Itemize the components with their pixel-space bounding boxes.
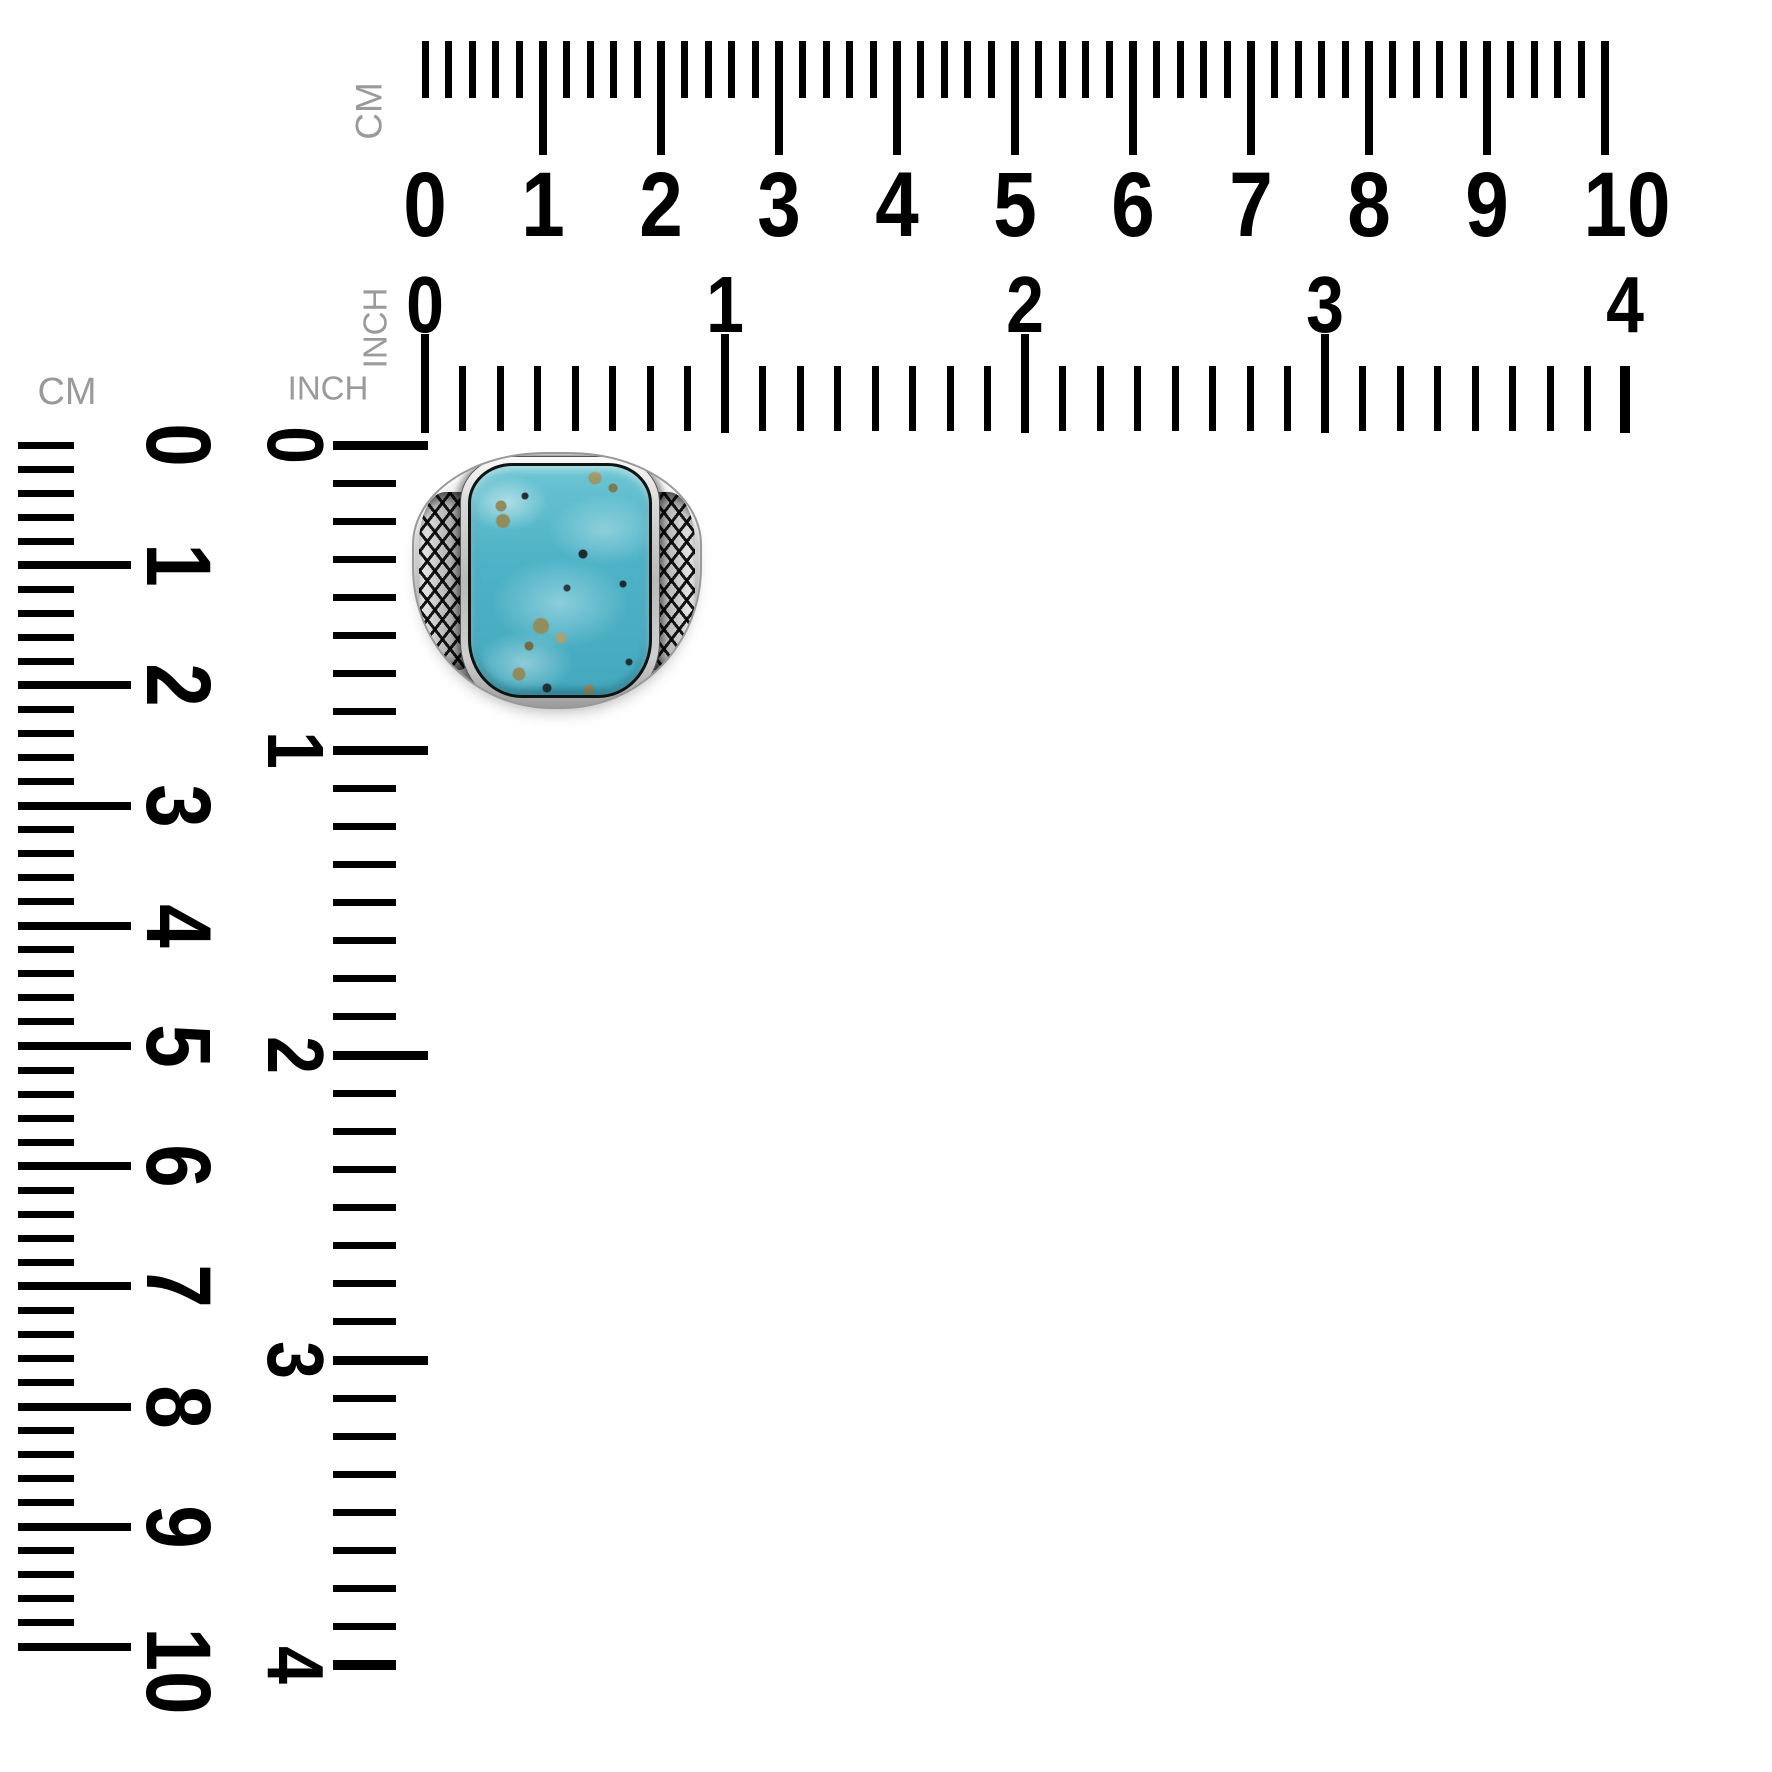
top-cm-ruler-number: 5 (993, 159, 1036, 251)
left-inch-ruler-number: 4 (255, 1646, 335, 1684)
top-cm-ruler-tick (1082, 41, 1089, 98)
left-cm-ruler-number: 0 (132, 423, 224, 466)
top-cm-ruler-tick (728, 41, 735, 98)
top-inch-ruler-number: 3 (1306, 265, 1344, 345)
top-cm-ruler-tick (941, 41, 948, 98)
top-cm-ruler-tick (469, 41, 476, 98)
top-inch-ruler-tick (1620, 366, 1630, 433)
left-cm-ruler-tick (18, 1162, 131, 1170)
left-cm-ruler-tick (18, 1187, 74, 1194)
top-cm-ruler-tick (422, 41, 429, 98)
top-inch-ruler-tick (1134, 366, 1141, 431)
top-cm-ruler-tick (1578, 41, 1585, 98)
top-cm-ruler-number: 7 (1229, 159, 1272, 251)
top-inch-ruler-tick (459, 366, 466, 431)
top-cm-ruler-tick (917, 41, 924, 98)
top-inch-ruler-tick (497, 366, 504, 431)
top-cm-ruler-tick (1011, 41, 1019, 155)
top-cm-ruler-tick (823, 41, 830, 98)
left-inch-ruler-tick (333, 785, 396, 792)
top-inch-ruler-tick (1547, 366, 1554, 431)
top-inch-ruler-tick (872, 366, 879, 431)
top-inch-ruler-tick (647, 366, 654, 431)
top-cm-ruler-number: 6 (1111, 159, 1154, 251)
top-inch-unit-label: INCH (359, 288, 392, 369)
top-inch-ruler-tick (1097, 366, 1104, 431)
top-inch-ruler-tick (759, 366, 766, 431)
top-cm-ruler-tick (1177, 41, 1184, 98)
top-cm-ruler-tick (1295, 41, 1302, 98)
left-cm-ruler-tick (18, 1355, 74, 1362)
top-cm-ruler-tick (799, 41, 806, 98)
top-inch-ruler-tick (534, 366, 541, 431)
top-cm-ruler-tick (1318, 41, 1325, 98)
left-cm-ruler-tick (18, 1547, 74, 1554)
top-inch-ruler-tick (1172, 366, 1179, 431)
top-cm-ruler-tick (705, 41, 712, 98)
left-cm-ruler-tick (18, 1235, 74, 1242)
top-cm-ruler-number: 9 (1465, 159, 1508, 251)
left-cm-ruler-tick (18, 681, 131, 689)
top-cm-ruler-tick (1365, 41, 1373, 155)
top-inch-ruler-tick (1509, 366, 1516, 431)
top-cm-ruler-tick (492, 41, 499, 98)
left-cm-ruler-number: 5 (132, 1024, 224, 1067)
left-cm-ruler-tick (18, 1523, 131, 1531)
top-cm-ruler-tick (1413, 41, 1420, 98)
left-cm-ruler-number: 7 (132, 1265, 224, 1308)
left-cm-ruler-tick (18, 1259, 74, 1266)
left-cm-ruler-tick (18, 586, 74, 593)
left-cm-ruler-tick (18, 706, 74, 713)
left-inch-ruler-tick (333, 1356, 428, 1365)
left-inch-unit-label: INCH (288, 372, 369, 405)
ring-silver-band (412, 452, 702, 709)
ring-left-shoulder-crosshatch-texture (419, 492, 466, 670)
top-inch-ruler-tick (572, 366, 579, 431)
left-inch-ruler-tick (333, 975, 396, 982)
left-cm-ruler-tick (18, 561, 131, 569)
top-inch-ruler-tick (1434, 366, 1441, 431)
top-cm-ruler-tick (1200, 41, 1207, 98)
left-inch-ruler-tick (333, 670, 396, 677)
left-cm-ruler-tick (18, 730, 74, 737)
left-cm-ruler-tick (18, 1451, 74, 1458)
top-cm-ruler-tick (539, 41, 547, 155)
top-cm-ruler-tick (775, 41, 783, 155)
top-cm-ruler-tick (1106, 41, 1113, 98)
left-cm-ruler-tick (18, 1643, 131, 1651)
left-inch-ruler-tick (333, 861, 396, 868)
top-cm-ruler-tick (610, 41, 617, 98)
left-cm-ruler-tick (18, 538, 74, 545)
top-inch-ruler-tick (1284, 366, 1291, 431)
left-cm-ruler-tick (18, 1595, 74, 1602)
top-cm-ruler-number: 4 (875, 159, 918, 251)
left-inch-ruler-tick (333, 1128, 396, 1135)
left-inch-ruler-tick (333, 1280, 396, 1287)
left-cm-ruler-tick (18, 1571, 74, 1578)
left-inch-ruler-tick (333, 1318, 396, 1325)
top-cm-ruler-number: 0 (403, 159, 446, 251)
left-cm-ruler-tick (18, 1403, 131, 1411)
top-cm-ruler-tick (657, 41, 665, 155)
left-cm-ruler-tick (18, 1139, 74, 1146)
left-cm-ruler-tick (18, 1307, 74, 1314)
left-inch-ruler-tick (333, 480, 396, 487)
left-inch-ruler-tick (333, 1090, 396, 1097)
top-cm-ruler-tick (870, 41, 877, 98)
left-cm-ruler-tick (18, 1211, 74, 1218)
left-cm-ruler-number: 1 (132, 543, 224, 586)
left-cm-ruler-tick (18, 1427, 74, 1434)
left-cm-ruler-tick (18, 1619, 74, 1626)
top-cm-ruler-tick (1460, 41, 1467, 98)
left-cm-ruler-tick (18, 1475, 74, 1482)
ring-photo (412, 452, 702, 709)
left-inch-ruler-tick (333, 594, 396, 601)
left-inch-ruler-tick (333, 1013, 396, 1020)
left-cm-ruler-tick (18, 1042, 131, 1050)
left-inch-ruler-tick (333, 1471, 396, 1478)
top-cm-ruler-tick (1507, 41, 1514, 98)
top-cm-ruler-number: 3 (757, 159, 800, 251)
top-cm-ruler-tick (1247, 41, 1255, 155)
top-cm-ruler-tick (563, 41, 570, 98)
top-inch-ruler-tick (1397, 366, 1404, 431)
top-inch-ruler-tick (984, 366, 991, 431)
top-cm-ruler-tick (587, 41, 594, 98)
left-inch-ruler-tick (333, 441, 428, 450)
left-cm-ruler-tick (18, 778, 74, 785)
left-cm-ruler-tick (18, 1499, 74, 1506)
left-inch-ruler-number: 2 (255, 1036, 335, 1074)
left-inch-ruler-tick (333, 518, 396, 525)
top-cm-ruler-tick (752, 41, 759, 98)
left-cm-ruler-tick (18, 1379, 74, 1386)
left-inch-ruler-number: 1 (255, 731, 335, 769)
top-cm-ruler-number: 2 (639, 159, 682, 251)
top-cm-ruler-tick (1271, 41, 1278, 98)
left-inch-ruler-tick (333, 1547, 396, 1554)
top-cm-ruler-number: 10 (1584, 159, 1671, 251)
top-inch-ruler-tick (1247, 366, 1254, 431)
top-cm-ruler-tick (1483, 41, 1491, 155)
left-cm-ruler-tick (18, 1115, 74, 1122)
top-inch-ruler-tick (947, 366, 954, 431)
left-cm-ruler-number: 6 (132, 1144, 224, 1187)
top-inch-ruler-number: 0 (406, 265, 444, 345)
top-cm-ruler-tick (893, 41, 901, 155)
left-cm-ruler-tick (18, 634, 74, 641)
left-cm-ruler-tick (18, 610, 74, 617)
left-cm-ruler-tick (18, 970, 74, 977)
left-inch-ruler-tick (333, 1166, 396, 1173)
left-cm-ruler-number: 4 (132, 904, 224, 947)
left-inch-ruler-tick (333, 708, 396, 715)
left-inch-ruler-number: 0 (255, 426, 335, 464)
top-cm-ruler-tick (1389, 41, 1396, 98)
left-inch-ruler-tick (333, 1204, 396, 1211)
turquoise-stone (468, 463, 652, 698)
left-inch-ruler-tick (333, 1509, 396, 1516)
left-inch-ruler-tick (333, 1585, 396, 1592)
left-cm-unit-label: CM (37, 373, 96, 411)
left-inch-ruler-tick (333, 823, 396, 830)
top-cm-ruler-tick (1601, 41, 1609, 155)
top-cm-ruler-tick (988, 41, 995, 98)
top-cm-ruler-number: 8 (1347, 159, 1390, 251)
left-inch-ruler-tick (333, 937, 396, 944)
left-cm-ruler-tick (18, 874, 74, 881)
top-cm-ruler-tick (1436, 41, 1443, 98)
top-inch-ruler-number: 2 (1006, 265, 1044, 345)
top-cm-ruler-tick (1531, 41, 1538, 98)
top-cm-ruler-tick (516, 41, 523, 98)
top-cm-ruler-number: 1 (521, 159, 564, 251)
left-cm-ruler-number: 3 (132, 784, 224, 827)
top-inch-ruler-number: 4 (1606, 265, 1644, 345)
left-cm-ruler-tick (18, 802, 131, 810)
top-inch-ruler-tick (609, 366, 616, 431)
top-cm-ruler-tick (445, 41, 452, 98)
top-cm-ruler-tick (681, 41, 688, 98)
left-cm-ruler-tick (18, 466, 74, 473)
left-inch-ruler-tick (333, 1242, 396, 1249)
top-cm-ruler-tick (1153, 41, 1160, 98)
left-cm-ruler-tick (18, 754, 74, 761)
top-inch-ruler-tick (684, 366, 691, 431)
left-cm-ruler-tick (18, 1018, 74, 1025)
left-inch-ruler-tick (333, 1395, 396, 1402)
left-cm-ruler-number: 9 (132, 1505, 224, 1548)
top-cm-ruler-tick (1224, 41, 1231, 98)
left-cm-ruler-tick (18, 514, 74, 521)
left-cm-ruler-number: 10 (132, 1628, 224, 1715)
top-inch-ruler-tick (1359, 366, 1366, 431)
top-inch-ruler-tick (834, 366, 841, 431)
top-cm-ruler-tick (1059, 41, 1066, 98)
left-cm-ruler-tick (18, 1282, 131, 1290)
left-inch-ruler-tick (333, 1623, 396, 1630)
left-cm-ruler-tick (18, 922, 131, 930)
left-cm-ruler-tick (18, 850, 74, 857)
left-cm-ruler-tick (18, 490, 74, 497)
left-cm-ruler-tick (18, 826, 74, 833)
left-inch-ruler-number: 3 (255, 1341, 335, 1379)
left-cm-ruler-tick (18, 946, 74, 953)
top-cm-ruler-tick (1035, 41, 1042, 98)
top-inch-ruler-tick (1584, 366, 1591, 431)
top-inch-ruler-tick (797, 366, 804, 431)
left-cm-ruler-number: 8 (132, 1385, 224, 1428)
top-inch-ruler-tick (909, 366, 916, 431)
left-inch-ruler-tick (333, 746, 428, 755)
product-measurement-image: 012345678910 01234 012345678910 01234 CM… (0, 0, 1772, 1772)
top-inch-ruler-number: 1 (706, 265, 744, 345)
top-inch-ruler-tick (1472, 366, 1479, 431)
top-cm-ruler-tick (1554, 41, 1561, 98)
left-cm-ruler-tick (18, 1091, 74, 1098)
left-inch-ruler-tick (333, 1433, 396, 1440)
left-cm-ruler-tick (18, 898, 74, 905)
left-cm-ruler-tick (18, 994, 74, 1001)
left-cm-ruler-tick (18, 442, 74, 449)
top-cm-ruler-tick (846, 41, 853, 98)
top-cm-unit-label: CM (351, 82, 388, 140)
top-inch-ruler-tick (1059, 366, 1066, 431)
top-cm-ruler-tick (1129, 41, 1137, 155)
top-cm-ruler-tick (964, 41, 971, 98)
left-inch-ruler-tick (333, 556, 396, 563)
top-cm-ruler-tick (634, 41, 641, 98)
left-cm-ruler-tick (18, 1331, 74, 1338)
ring-stone-bezel (460, 456, 660, 708)
left-inch-ruler-tick (333, 1660, 396, 1670)
top-inch-ruler-tick (1209, 366, 1216, 431)
left-cm-ruler-tick (18, 658, 74, 665)
left-cm-ruler-number: 2 (132, 664, 224, 707)
left-inch-ruler-tick (333, 632, 396, 639)
left-cm-ruler-tick (18, 1067, 74, 1074)
top-cm-ruler-tick (1342, 41, 1349, 98)
left-inch-ruler-tick (333, 1051, 428, 1060)
left-inch-ruler-tick (333, 899, 396, 906)
